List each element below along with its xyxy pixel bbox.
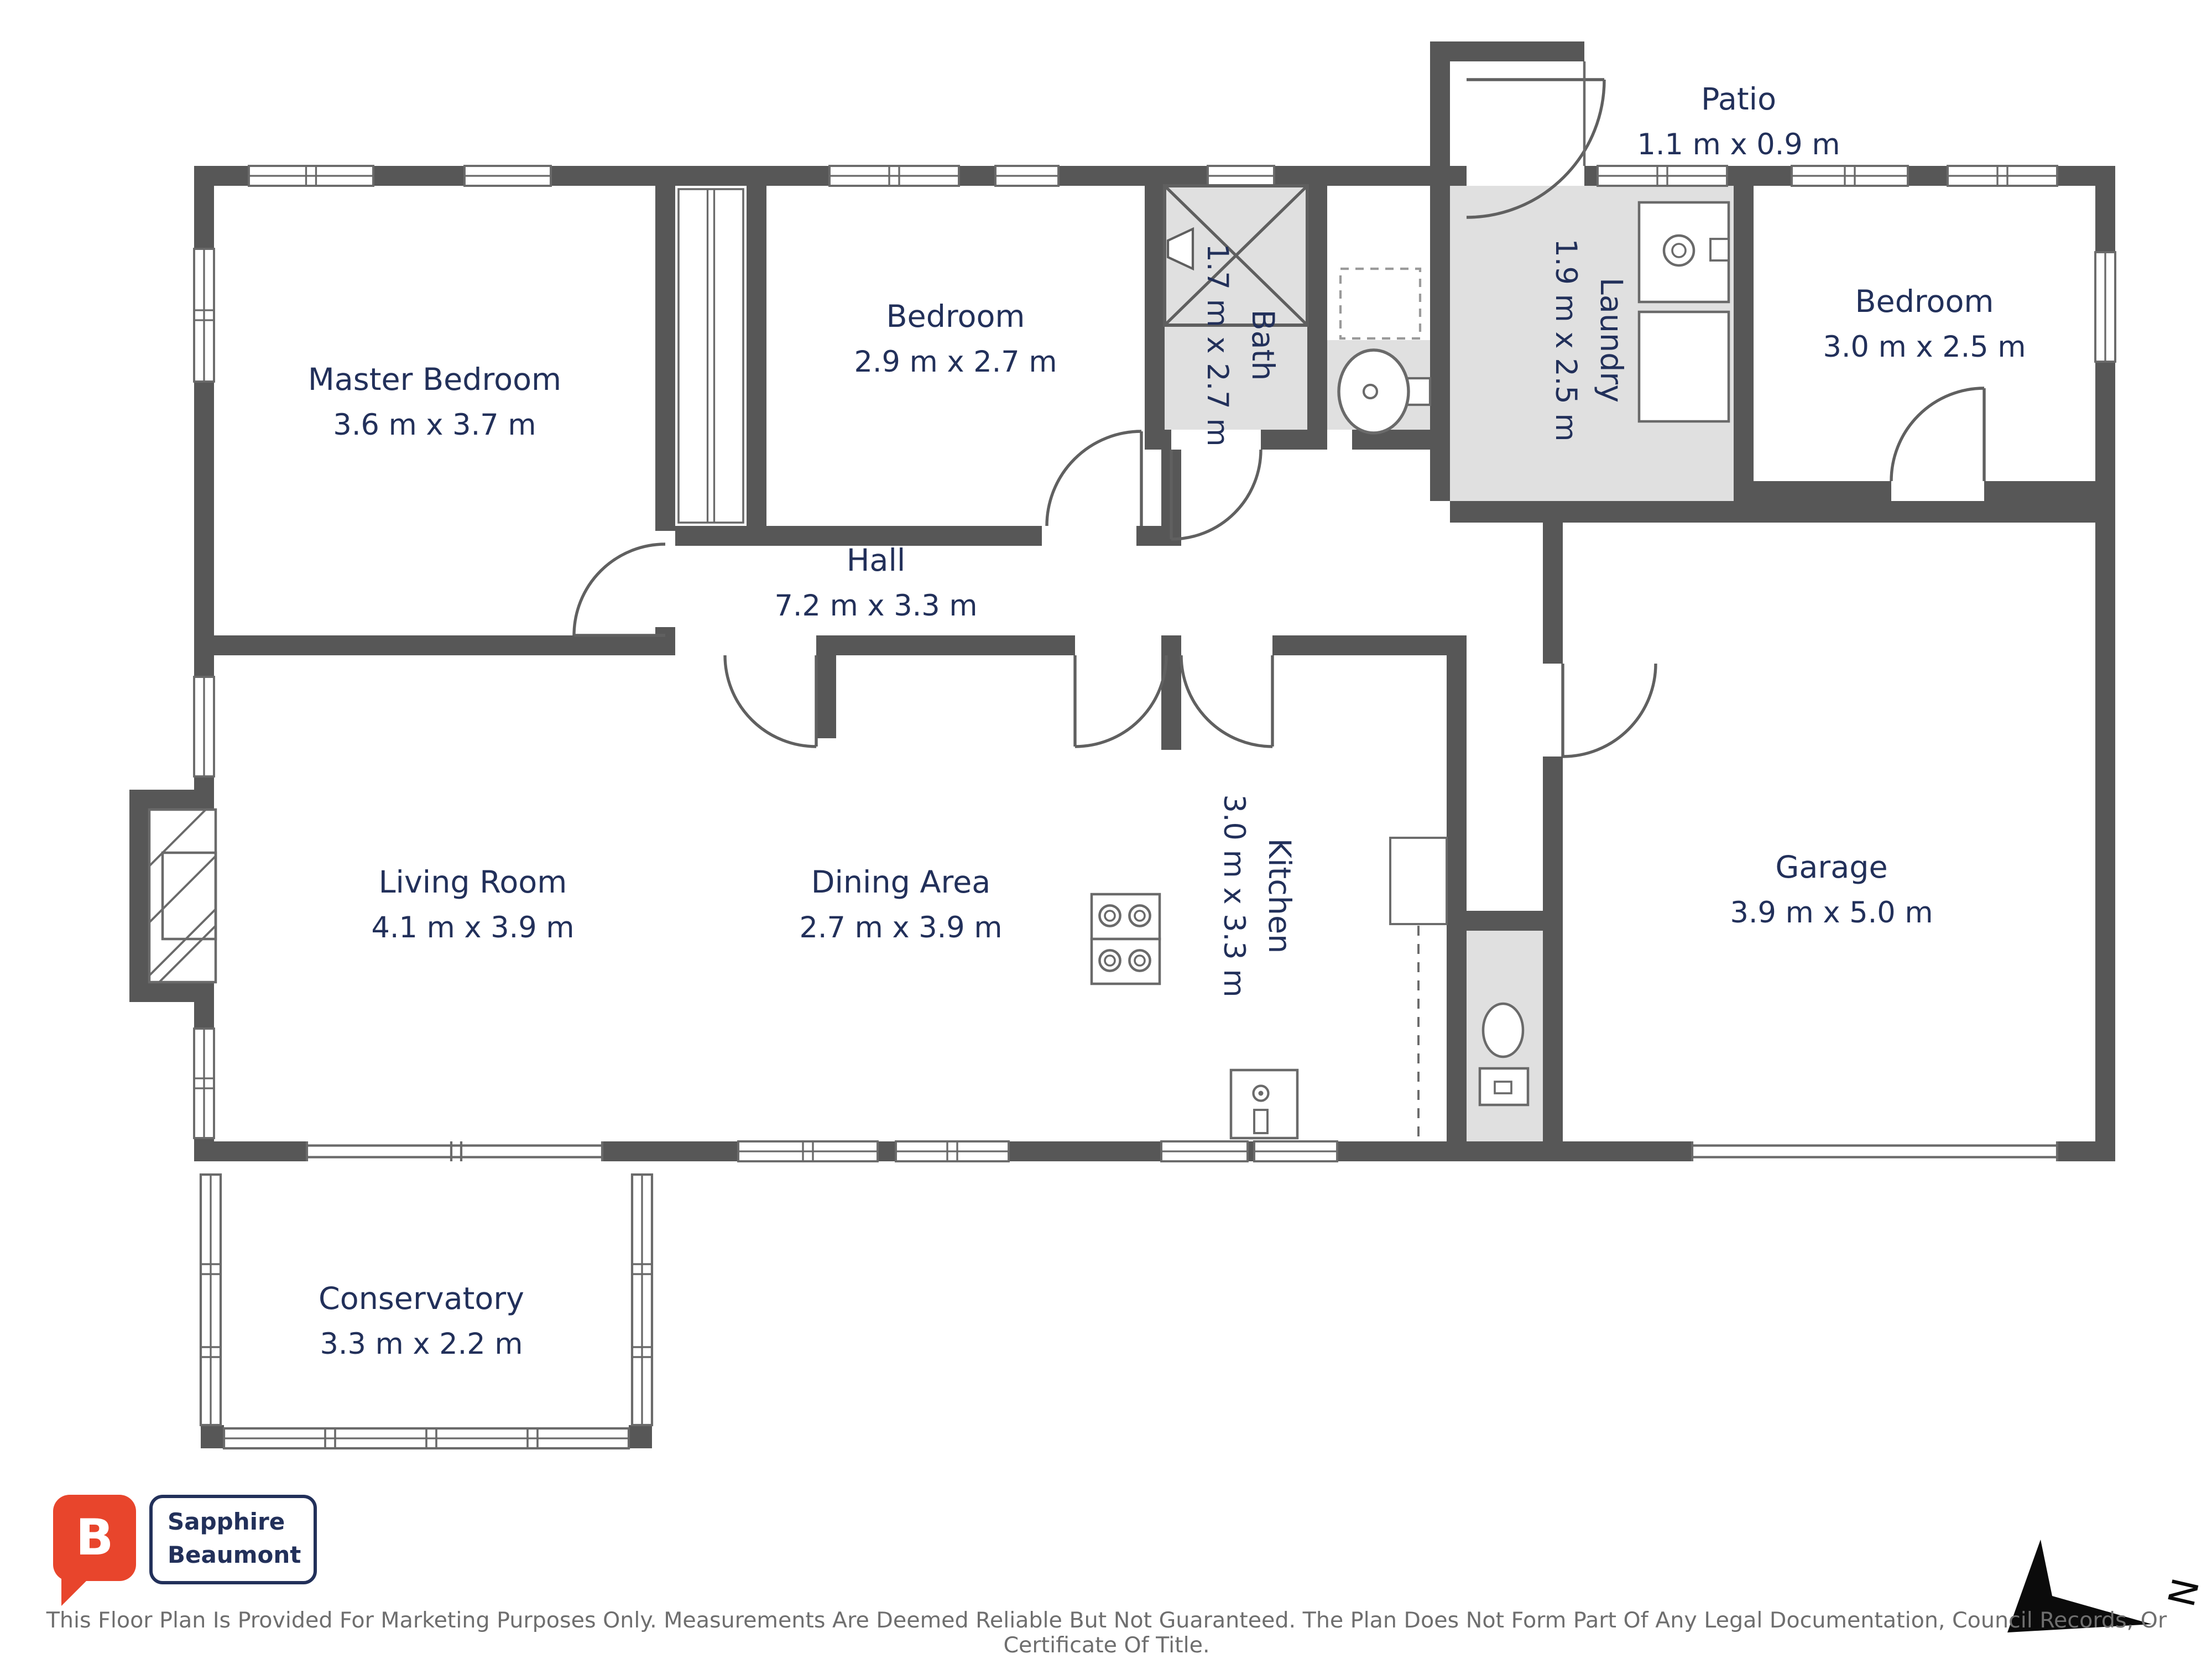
room-label-patio: Patio 1.1 m x 0.9 m xyxy=(1637,78,1840,168)
garage-side-door-opening xyxy=(1543,664,1563,757)
room-dimensions: 3.3 m x 2.2 m xyxy=(319,1323,524,1367)
hall-bottom-wall-1 xyxy=(836,635,1075,655)
kitchen-door-right-swing-icon xyxy=(1181,655,1272,747)
master-bedroom-bottom-wall xyxy=(194,635,675,655)
window-icon xyxy=(1254,1141,1337,1161)
room-label-dining-area: Dining Area 2.7 m x 3.9 m xyxy=(799,861,1002,951)
wardrobe-right-wall xyxy=(747,186,766,526)
room-dimensions: 7.2 m x 3.3 m xyxy=(774,585,977,629)
window-icon xyxy=(1598,166,1727,186)
logo-speech-bubble-icon: B xyxy=(53,1495,136,1581)
room-name: Hall xyxy=(774,539,977,585)
wardrobe-icon xyxy=(679,189,743,523)
bath-left-wall xyxy=(1145,186,1165,450)
window-icon xyxy=(738,1141,878,1161)
room-name: Kitchen xyxy=(1255,794,1301,997)
disclaimer-text: This Floor Plan Is Provided For Marketin… xyxy=(0,1609,2212,1659)
cooktop-icon xyxy=(1092,894,1160,984)
room-name: Master Bedroom xyxy=(308,358,561,404)
garage-vehicle-door xyxy=(1692,1141,2057,1161)
window-icon xyxy=(1161,1141,1248,1161)
fireplace-icon xyxy=(129,790,216,1002)
room-dimensions: 3.0 m x 2.5 m xyxy=(1823,326,2026,370)
room-label-bedroom-3: Bedroom 3.0 m x 2.5 m xyxy=(1823,280,2026,370)
laundry-right-wall xyxy=(1734,186,1754,523)
conservatory-opening xyxy=(307,1141,602,1161)
wc-top-wall xyxy=(1467,911,1543,931)
garage-top-wall xyxy=(1543,501,2095,523)
patio-left-wall xyxy=(1430,41,1450,186)
conservatory-post-right xyxy=(629,1425,652,1448)
bedroom2-door-swing-icon xyxy=(1047,431,1141,526)
laundry-left-wall xyxy=(1430,166,1450,501)
window-icon xyxy=(830,166,959,186)
logo-name-box: Sapphire Beaumont xyxy=(149,1495,317,1584)
company-name-line1: Sapphire xyxy=(168,1506,314,1540)
window-icon xyxy=(249,166,373,186)
kitchen-entry-stub-wall xyxy=(1161,635,1181,750)
wc-nook-opening xyxy=(1327,430,1352,450)
room-name: Bath xyxy=(1238,243,1284,446)
room-name: Conservatory xyxy=(319,1277,524,1323)
room-name: Laundry xyxy=(1587,238,1632,441)
garage-side-door-swing-icon xyxy=(1563,664,1656,757)
patio-top-wall xyxy=(1430,41,1584,61)
logo-monogram: B xyxy=(76,1509,114,1567)
window-icon xyxy=(896,1141,1009,1161)
north-label: N xyxy=(2158,1574,2206,1610)
room-name: Living Room xyxy=(371,861,574,907)
window-icon xyxy=(465,166,551,186)
walls xyxy=(194,41,2115,1448)
window-icon xyxy=(1792,166,1908,186)
living-room-door-swing-icon xyxy=(725,655,816,747)
window-icon xyxy=(2095,252,2115,362)
garage-left-wall xyxy=(1543,523,1563,1161)
window-icon xyxy=(194,249,214,382)
kitchen-right-wall xyxy=(1447,655,1467,1141)
room-dimensions: 4.1 m x 3.9 m xyxy=(371,907,574,951)
window-icon xyxy=(1948,166,2057,186)
room-dimensions: 3.0 m x 3.3 m xyxy=(1211,794,1255,997)
room-dimensions: 3.6 m x 3.7 m xyxy=(308,404,561,448)
bedroom2-door-opening xyxy=(1042,526,1136,546)
room-dimensions: 1.7 m x 2.7 m xyxy=(1194,243,1238,446)
agency-logo: B Sapphire Beaumont xyxy=(53,1495,317,1584)
room-name: Patio xyxy=(1637,78,1840,124)
floor-plan-canvas: N xyxy=(0,0,2212,1659)
kitchen-counter xyxy=(1390,838,1447,924)
room-name: Dining Area xyxy=(799,861,1002,907)
window-icon xyxy=(194,1029,214,1138)
company-name-line2: Beaumont xyxy=(168,1540,314,1573)
floor-plan-page: N Master Bedroom 3.6 m x 3.7 m Bedroom 2… xyxy=(0,0,2212,1659)
bath-door-swing-icon xyxy=(1171,450,1261,539)
room-label-garage: Garage 3.9 m x 5.0 m xyxy=(1730,846,1933,936)
bath-right-wall xyxy=(1307,186,1327,450)
room-label-bedroom-2: Bedroom 2.9 m x 2.7 m xyxy=(854,295,1057,385)
room-label-conservatory: Conservatory 3.3 m x 2.2 m xyxy=(319,1277,524,1367)
hall-bottom-wall-2 xyxy=(1272,635,1467,655)
living-room-stub-wall xyxy=(816,635,836,738)
room-label-hall: Hall 7.2 m x 3.3 m xyxy=(774,539,977,629)
room-name: Bedroom xyxy=(854,295,1057,341)
window-icon xyxy=(995,166,1058,186)
master-bedroom-door-swing-icon xyxy=(574,544,665,635)
kitchen-sink-icon xyxy=(1231,1070,1297,1138)
room-dimensions: 2.9 m x 2.7 m xyxy=(854,341,1057,385)
conservatory-post-left xyxy=(201,1425,224,1448)
washing-machine-icon xyxy=(1639,202,1729,302)
room-name: Bedroom xyxy=(1823,280,2026,326)
bedroom3-door-opening xyxy=(1891,481,1984,501)
window-icon xyxy=(1208,166,1274,186)
window-icon xyxy=(194,677,214,776)
appliance-space-dashed xyxy=(1340,269,1420,338)
room-label-bath: Bath 1.7 m x 2.7 m xyxy=(1194,243,1284,446)
room-dimensions: 3.9 m x 5.0 m xyxy=(1730,892,1933,936)
kitchen-door-left-swing-icon xyxy=(1075,655,1166,747)
bedroom3-door-swing-icon xyxy=(1891,388,1984,481)
room-label-living-room: Living Room 4.1 m x 3.9 m xyxy=(371,861,574,951)
room-name: Garage xyxy=(1730,846,1933,892)
room-dimensions: 1.9 m x 2.5 m xyxy=(1543,238,1587,441)
room-label-kitchen: Kitchen 3.0 m x 3.3 m xyxy=(1211,794,1301,997)
room-label-laundry: Laundry 1.9 m x 2.5 m xyxy=(1543,238,1632,441)
room-dimensions: 2.7 m x 3.9 m xyxy=(799,907,1002,951)
room-dimensions: 1.1 m x 0.9 m xyxy=(1637,124,1840,168)
room-label-master-bedroom: Master Bedroom 3.6 m x 3.7 m xyxy=(308,358,561,448)
laundry-counter xyxy=(1639,312,1729,421)
